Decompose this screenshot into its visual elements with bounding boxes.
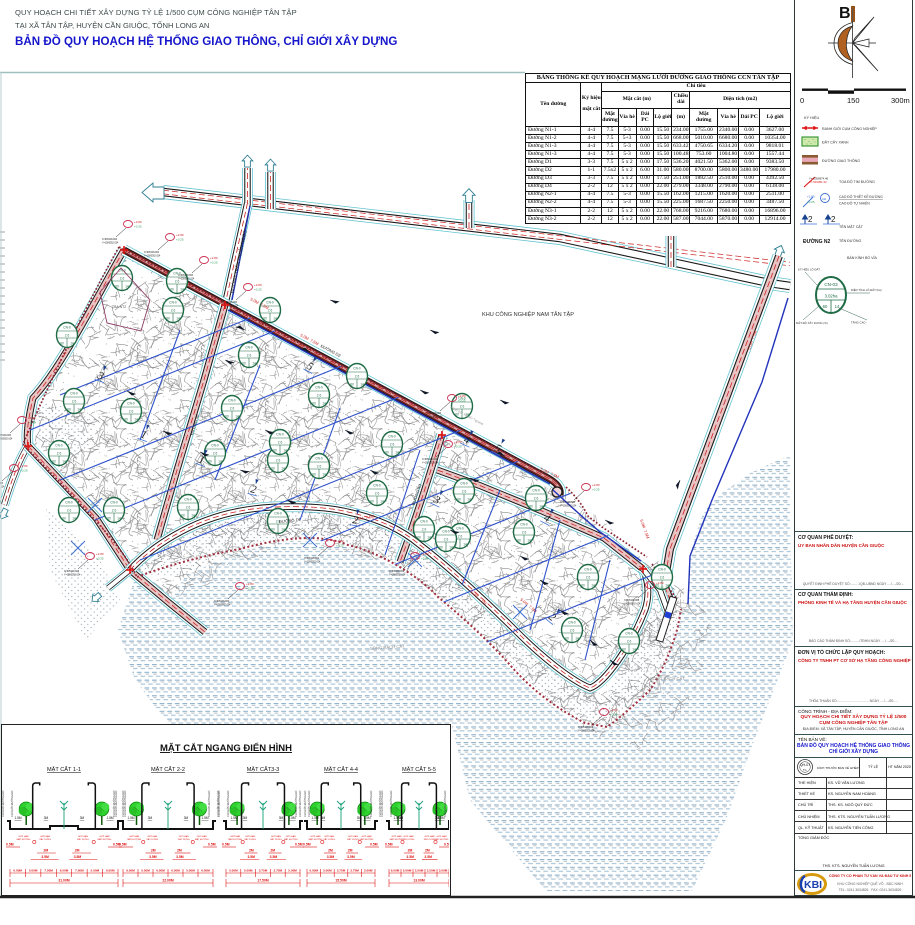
svg-text:CN-0: CN-0 — [245, 346, 253, 350]
svg-text:60: 60 — [622, 648, 626, 652]
svg-text:2.6: 2.6 — [458, 535, 463, 539]
svg-text:3.5M: 3.5M — [270, 855, 278, 859]
svg-text:2.6: 2.6 — [462, 490, 467, 494]
svg-text:+0.25: +0.25 — [458, 398, 466, 402]
svg-text:+2.80: +2.80 — [336, 539, 344, 543]
svg-text:13.00M: 13.00M — [413, 879, 424, 883]
svg-text:+0.25: +0.25 — [28, 420, 36, 424]
svg-text:14: 14 — [191, 514, 195, 518]
svg-text:ĐƯỜNG GIAO THÔNG: ĐƯỜNG GIAO THÔNG — [822, 158, 860, 163]
svg-text:GIỚI HẠNXÂY DỰNG: GIỚI HẠNXÂY DỰNG — [323, 835, 335, 841]
svg-text:QH-07: QH-07 — [800, 763, 811, 767]
svg-text:TÊN MẶT CẬT: TÊN MẶT CẬT — [839, 224, 864, 229]
svg-text:CN-0: CN-0 — [211, 444, 219, 448]
svg-text:+2.80: +2.80 — [210, 256, 218, 260]
svg-text:2.6: 2.6 — [67, 509, 72, 513]
svg-text:CN-0: CN-0 — [353, 367, 361, 371]
svg-text:2.6: 2.6 — [57, 452, 62, 456]
svg-text:+2.80: +2.80 — [807, 195, 815, 199]
svg-text:MẬT ĐỘ XÂY DỰNG (%): MẬT ĐỘ XÂY DỰNG (%) — [796, 320, 828, 325]
svg-text:2.6: 2.6 — [444, 538, 449, 542]
svg-text:CN-0: CN-0 — [65, 501, 73, 505]
svg-text:14: 14 — [70, 342, 74, 346]
svg-text:3M: 3M — [44, 816, 49, 820]
svg-text:5.00M: 5.00M — [323, 869, 332, 873]
svg-text:+0.25: +0.25 — [610, 712, 618, 716]
svg-text:MẶT CẮT NGANG ĐIỂN HÌNH: MẶT CẮT NGANG ĐIỂN HÌNH — [160, 742, 292, 754]
svg-text:14: 14 — [281, 528, 285, 532]
svg-text:X=605109.900: X=605109.900 — [422, 459, 438, 461]
svg-text:1.5M: 1.5M — [288, 816, 295, 820]
svg-text:GIỚI HẠNMẬT ĐƯỜNG: GIỚI HẠNMẬT ĐƯỜNG — [17, 835, 31, 841]
svg-text:2.6: 2.6 — [72, 400, 77, 404]
svg-text:3.5M: 3.5M — [406, 855, 414, 859]
svg-text:CHỈ GIỚI ĐƯỜNG ĐỎ: CHỈ GIỚI ĐƯỜNG ĐỎ — [9, 791, 14, 817]
svg-text:2.6: 2.6 — [627, 640, 632, 644]
svg-text:3.5M: 3.5M — [41, 855, 49, 859]
svg-text:3M: 3M — [399, 816, 404, 820]
svg-text:60: 60 — [312, 473, 316, 477]
svg-text:60: 60 — [225, 415, 229, 419]
svg-text:0.5M: 0.5M — [208, 843, 216, 847]
svg-text:+0.25: +0.25 — [254, 287, 262, 291]
svg-text:CN-0: CN-0 — [568, 621, 576, 625]
svg-text:CN-0: CN-0 — [373, 484, 381, 488]
svg-text:60: 60 — [417, 536, 421, 540]
svg-text:2M: 2M — [348, 849, 353, 853]
svg-text:+0.25: +0.25 — [134, 224, 142, 228]
svg-text:KÝ HIỆU LÔ ĐẤT: KÝ HIỆU LÔ ĐẤT — [798, 267, 820, 272]
svg-text:CN-0: CN-0 — [127, 402, 135, 406]
svg-text:60: 60 — [166, 317, 170, 321]
svg-text:2.6: 2.6 — [375, 492, 380, 496]
svg-text:X=605109.900: X=605109.900 — [0, 435, 12, 437]
svg-text:CN-0: CN-0 — [70, 392, 78, 396]
svg-text:14: 14 — [273, 317, 277, 321]
svg-text:60: 60 — [124, 418, 128, 422]
svg-text:60: 60 — [312, 402, 316, 406]
svg-text:60: 60 — [581, 584, 585, 588]
svg-text:6.00M: 6.00M — [126, 869, 135, 873]
svg-text:2.50M: 2.50M — [427, 869, 436, 873]
svg-text:0.5M: 0.5M — [6, 843, 14, 847]
svg-text:0.5M: 0.5M — [119, 843, 127, 847]
svg-text:CHỈ GIỚI ĐƯỜNG ĐỎ: CHỈ GIỚI ĐƯỜNG ĐỎ — [225, 791, 230, 817]
svg-text:3.75M: 3.75M — [350, 869, 359, 873]
svg-text:+2.80: +2.80 — [254, 283, 262, 287]
svg-text:+2.80: +2.80 — [28, 416, 36, 420]
svg-text:3.00M: 3.00M — [439, 869, 448, 873]
svg-text:5.00M: 5.00M — [229, 869, 238, 873]
svg-text:T.L: T.L — [803, 768, 807, 772]
svg-text:SÔNG RẠCH CÁT: SÔNG RẠCH CÁT — [650, 676, 685, 681]
svg-text:RANH GIỚI CỤM CÔNG NGHIỆP: RANH GIỚI CỤM CÔNG NGHIỆP — [822, 126, 877, 131]
svg-text:2.6: 2.6 — [660, 576, 665, 580]
svg-text:X=605109.900: X=605109.900 — [624, 600, 640, 602]
svg-text:+0.25: +0.25 — [592, 487, 600, 491]
svg-text:6.00M: 6.00M — [201, 869, 210, 873]
svg-text:X=605109.900: X=605109.900 — [102, 239, 118, 241]
svg-text:14: 14 — [77, 408, 81, 412]
svg-text:60: 60 — [263, 317, 267, 321]
svg-text:14: 14 — [591, 584, 595, 588]
svg-text:CN-0: CN-0 — [55, 444, 63, 448]
svg-text:TỌA ĐỘ TIM ĐƯỜNG: TỌA ĐỘ TIM ĐƯỜNG — [839, 179, 875, 184]
svg-text:GIỚI HẠNXÂY DỰNG: GIỚI HẠNXÂY DỰNG — [403, 835, 415, 841]
svg-text:1.5M: 1.5M — [201, 816, 208, 820]
svg-text:60: 60 — [62, 517, 66, 521]
svg-text:2M: 2M — [270, 849, 275, 853]
svg-text:2.6: 2.6 — [213, 452, 218, 456]
svg-text:KHU CÔNG NGHIỆP NAM TÂN TẬP: KHU CÔNG NGHIỆP NAM TÂN TẬP — [482, 310, 574, 318]
svg-text:60: 60 — [273, 449, 277, 453]
svg-text:3M: 3M — [243, 816, 248, 820]
svg-text:CN-0: CN-0 — [520, 523, 528, 527]
svg-text:GIỚI HẠNXÂY DỰNG: GIỚI HẠNXÂY DỰNG — [424, 835, 436, 841]
svg-text:Y=1585052.624: Y=1585052.624 — [578, 731, 595, 733]
svg-text:CN-0: CN-0 — [658, 568, 666, 572]
svg-text:7.50M: 7.50M — [75, 869, 84, 873]
svg-text:CN-0: CN-0 — [420, 520, 428, 524]
svg-text:ĐẤT CÂY XANH: ĐẤT CÂY XANH — [822, 141, 849, 145]
svg-text:CN-0: CN-0 — [274, 512, 282, 516]
svg-text:+2.80: +2.80 — [176, 233, 184, 237]
svg-text:0.5M: 0.5M — [295, 843, 303, 847]
svg-text:CHỈ GIỚI ĐƯỜNG ĐỎ: CHỈ GIỚI ĐƯỜNG ĐỎ — [302, 791, 307, 817]
svg-text:GIỚI HẠNMẬT ĐƯỜNG: GIỚI HẠNMẬT ĐƯỜNG — [98, 835, 112, 841]
svg-text:GIỚI HẠNMẬT ĐƯỜNG: GIỚI HẠNMẬT ĐƯỜNG — [435, 835, 449, 841]
svg-text:GIỚI HẠNMẬT ĐƯỜNG: GIỚI HẠNMẬT ĐƯỜNG — [228, 835, 242, 841]
svg-text:Y=1585052.624: Y=1585052.624 — [422, 463, 439, 465]
svg-text:Y=1585052.624: Y=1585052.624 — [102, 243, 119, 245]
svg-text:14: 14 — [134, 418, 138, 422]
svg-text:CĐ: CĐ — [822, 197, 827, 201]
svg-text:2.6: 2.6 — [422, 528, 427, 532]
svg-text:TBA-NT2: TBA-NT2 — [112, 305, 126, 309]
svg-text:2.6: 2.6 — [230, 407, 235, 411]
svg-text:2.6: 2.6 — [65, 334, 70, 338]
svg-text:+2.80: +2.80 — [134, 220, 142, 224]
svg-text:CN-0: CN-0 — [63, 326, 71, 330]
svg-text:3.00M: 3.00M — [364, 869, 373, 873]
svg-text:6.00M: 6.00M — [13, 869, 22, 873]
svg-text:Y=1585052.624: Y=1585052.624 — [389, 575, 406, 577]
svg-text:CN-0: CN-0 — [228, 399, 236, 403]
svg-text:14: 14 — [539, 505, 543, 509]
svg-text:X=605109.900: X=605109.900 — [426, 413, 442, 415]
svg-text:2.6: 2.6 — [268, 309, 273, 313]
svg-text:CHỈ GIỚI ĐƯỜNG ĐỎ: CHỈ GIỚI ĐƯỜNG ĐỎ — [388, 791, 393, 817]
svg-text:14: 14 — [281, 467, 285, 471]
svg-text:60: 60 — [385, 451, 389, 455]
svg-text:X= 591051.32: X= 591051.32 — [809, 180, 827, 184]
svg-text:+0.25: +0.25 — [336, 543, 344, 547]
svg-text:2.50M: 2.50M — [415, 869, 424, 873]
svg-text:+2.80: +2.80 — [96, 552, 104, 556]
svg-text:GIỚI HẠNXÂY DỰNG: GIỚI HẠNXÂY DỰNG — [146, 835, 158, 841]
svg-text:GIỚI HẠNXÂY DỰNG: GIỚI HẠNXÂY DỰNG — [77, 835, 89, 841]
svg-text:3.02ha: 3.02ha — [825, 294, 838, 299]
svg-text:3.5M: 3.5M — [424, 855, 432, 859]
svg-text:GIỚI HẠNXÂY DỰNG: GIỚI HẠNXÂY DỰNG — [244, 835, 256, 841]
svg-text:2.6: 2.6 — [171, 309, 176, 313]
svg-text:60: 60 — [60, 342, 64, 346]
svg-text:14: 14 — [322, 473, 326, 477]
svg-text:5.00M: 5.00M — [186, 869, 195, 873]
svg-text:CN-0: CN-0 — [460, 482, 468, 486]
svg-text:CHỈ GIỚI ĐƯỜNG ĐỎ: CHỈ GIỚI ĐƯỜNG ĐỎ — [2, 791, 5, 817]
svg-text:GIỚI HẠNXÂY DỰNG: GIỚI HẠNXÂY DỰNG — [39, 835, 51, 841]
svg-text:MẶT CẮT3-3: MẶT CẮT3-3 — [247, 765, 280, 773]
svg-text:3M: 3M — [80, 816, 85, 820]
svg-text:14: 14 — [395, 451, 399, 455]
svg-text:31.00M: 31.00M — [58, 879, 69, 883]
svg-text:GIỚI HẠNMẬT ĐƯỜNG: GIỚI HẠNMẬT ĐƯỜNG — [195, 835, 209, 841]
svg-text:14: 14 — [62, 460, 66, 464]
svg-text:2.6: 2.6 — [390, 443, 395, 447]
svg-text:14: 14 — [463, 543, 467, 547]
svg-text:60: 60 — [107, 517, 111, 521]
svg-text:Y=1585052.624: Y=1585052.624 — [178, 279, 195, 281]
svg-text:60: 60 — [350, 383, 354, 387]
svg-text:2.6: 2.6 — [120, 277, 125, 281]
svg-text:2.6: 2.6 — [276, 459, 281, 463]
svg-text:6.00M: 6.00M — [391, 869, 400, 873]
svg-text:2.6: 2.6 — [586, 576, 591, 580]
svg-text:CN-0: CN-0 — [532, 489, 540, 493]
svg-text:+2.80: +2.80 — [592, 483, 600, 487]
svg-text:14: 14 — [322, 402, 326, 406]
svg-text:14: 14 — [665, 584, 669, 588]
svg-text:GIỚI HẠNXÂY DỰNG: GIỚI HẠNXÂY DỰNG — [347, 835, 359, 841]
svg-text:150: 150 — [847, 96, 860, 105]
svg-text:3.5M: 3.5M — [176, 855, 184, 859]
svg-text:DIỆN TÍCH LÔ ĐẤT (ha): DIỆN TÍCH LÔ ĐẤT (ha) — [851, 287, 882, 292]
svg-text:1.5M: 1.5M — [230, 816, 237, 820]
svg-text:60: 60 — [271, 528, 275, 532]
svg-text:2.6: 2.6 — [534, 497, 539, 501]
svg-text:14: 14 — [632, 648, 636, 652]
svg-text:300m: 300m — [891, 96, 910, 105]
svg-text:Y=1585052.624: Y=1585052.624 — [624, 604, 641, 606]
svg-text:14: 14 — [467, 498, 471, 502]
svg-text:+0.25: +0.25 — [176, 237, 184, 241]
svg-text:2.6: 2.6 — [355, 375, 360, 379]
svg-text:Y=1585052.624: Y=1585052.624 — [560, 506, 577, 508]
svg-text:60: 60 — [170, 288, 174, 292]
svg-text:+0.25: +0.25 — [246, 586, 254, 590]
svg-text:6.00M: 6.00M — [309, 869, 318, 873]
svg-text:1.5M: 1.5M — [311, 816, 318, 820]
svg-text:2: 2 — [808, 215, 813, 224]
svg-text:60: 60 — [181, 514, 185, 518]
svg-text:BÁN KÍNH BÓ VỈA: BÁN KÍNH BÓ VỈA — [847, 255, 878, 260]
svg-text:2.6: 2.6 — [522, 531, 527, 535]
svg-text:+2.80: +2.80 — [656, 581, 664, 585]
svg-text:60: 60 — [370, 500, 374, 504]
svg-text:5.00M: 5.00M — [403, 869, 412, 873]
svg-text:3.75M: 3.75M — [337, 869, 346, 873]
svg-text:TẦNG CAO: TẦNG CAO — [851, 321, 866, 325]
svg-text:2M: 2M — [328, 849, 333, 853]
svg-text:5.00M: 5.00M — [141, 869, 150, 873]
svg-text:X=605109.900: X=605109.900 — [64, 571, 80, 573]
svg-text:1.5M: 1.5M — [363, 816, 370, 820]
svg-text:1.5M: 1.5M — [437, 816, 444, 820]
svg-text:CAO ĐỘ THIẾT KẾ ĐƯỜNG: CAO ĐỘ THIẾT KẾ ĐƯỜNG — [839, 194, 883, 199]
svg-text:+0.25: +0.25 — [210, 260, 218, 264]
svg-text:CN-0: CN-0 — [110, 501, 118, 505]
svg-text:CN-0: CN-0 — [315, 386, 323, 390]
svg-text:Y=1585052.624: Y=1585052.624 — [0, 439, 13, 441]
svg-text:3M: 3M — [357, 816, 362, 820]
svg-text:2.6: 2.6 — [247, 354, 252, 358]
svg-text:2.6: 2.6 — [186, 506, 191, 510]
svg-text:60: 60 — [823, 304, 828, 309]
svg-text:5.00M: 5.00M — [91, 869, 100, 873]
svg-text:CN-03: CN-03 — [824, 282, 838, 287]
svg-text:X=605109.900: X=605109.900 — [304, 558, 320, 560]
svg-text:17.50M: 17.50M — [257, 879, 268, 883]
svg-text:+2.80: +2.80 — [421, 552, 429, 556]
svg-text:3.5M: 3.5M — [74, 855, 82, 859]
svg-text:14: 14 — [117, 517, 121, 521]
svg-text:CN-0: CN-0 — [315, 457, 323, 461]
svg-text:GIỚI HẠNXÂY DỰNG: GIỚI HẠNXÂY DỰNG — [178, 835, 190, 841]
svg-text:0.5M: 0.5M — [370, 843, 378, 847]
svg-text:KÝ HIỆU: KÝ HIỆU — [804, 115, 819, 120]
svg-text:TÊN ĐƯỜNG: TÊN ĐƯỜNG — [839, 238, 862, 243]
svg-text:14: 14 — [176, 317, 180, 321]
svg-text:5.00M: 5.00M — [288, 869, 297, 873]
svg-text:22.00M: 22.00M — [162, 879, 173, 883]
svg-text:X=605109.900: X=605109.900 — [389, 571, 405, 573]
svg-text:2M: 2M — [425, 849, 430, 853]
svg-text:KBI: KBI — [804, 879, 822, 891]
svg-text:3.5M: 3.5M — [347, 855, 355, 859]
svg-text:1.5M: 1.5M — [106, 816, 113, 820]
svg-text:2.6: 2.6 — [317, 465, 322, 469]
svg-text:0.5M: 0.5M — [222, 843, 230, 847]
svg-text:60: 60 — [439, 546, 443, 550]
svg-text:2M: 2M — [151, 849, 156, 853]
svg-text:6.00M: 6.00M — [171, 869, 180, 873]
svg-text:6.00M: 6.00M — [60, 869, 69, 873]
svg-text:Y=1585052.624: Y=1585052.624 — [144, 256, 161, 258]
svg-text:2.6: 2.6 — [317, 394, 322, 398]
svg-text:2.6: 2.6 — [278, 441, 283, 445]
svg-text:CN-0: CN-0 — [184, 498, 192, 502]
svg-text:Y=1585052.624: Y=1585052.624 — [214, 605, 231, 607]
svg-text:+2.80: +2.80 — [20, 464, 28, 468]
svg-text:3.5M: 3.5M — [149, 855, 157, 859]
svg-text:MẶT CẮT 4-4: MẶT CẮT 4-4 — [324, 765, 358, 773]
svg-text:CHỈ GIỚI ĐƯỜNG ĐỎ: CHỈ GIỚI ĐƯỜNG ĐỎ — [206, 791, 211, 817]
svg-text:2M: 2M — [408, 849, 413, 853]
svg-text:GIỚI HẠNMẬT ĐƯỜNG: GIỚI HẠNMẬT ĐƯỜNG — [127, 835, 141, 841]
svg-text:14: 14 — [527, 539, 531, 543]
svg-text:14: 14 — [380, 500, 384, 504]
svg-text:CAO ĐỘ TỰ NHIÊN: CAO ĐỘ TỰ NHIÊN — [839, 201, 870, 206]
svg-text:5.0M 7.5M: 5.0M 7.5M — [639, 519, 651, 540]
svg-text:CN-0: CN-0 — [276, 433, 284, 437]
svg-text:+2.80: +2.80 — [458, 394, 466, 398]
svg-text:3.75M: 3.75M — [273, 869, 282, 873]
svg-text:CN-0: CN-0 — [625, 632, 633, 636]
svg-text:0.5M: 0.5M — [385, 843, 393, 847]
svg-text:14: 14 — [283, 449, 287, 453]
svg-text:MẶT CẮT 5-5: MẶT CẮT 5-5 — [402, 765, 436, 773]
svg-text:14: 14 — [575, 637, 579, 641]
svg-text:+2.80: +2.80 — [610, 708, 618, 712]
svg-text:14: 14 — [449, 546, 453, 550]
svg-text:ĐƯỜNG N2: ĐƯỜNG N2 — [803, 237, 831, 245]
svg-text:2: 2 — [831, 215, 836, 224]
svg-text:60: 60 — [517, 539, 521, 543]
svg-text:60: 60 — [52, 460, 56, 464]
svg-text:+0.25: +0.25 — [96, 556, 104, 560]
svg-text:14: 14 — [72, 517, 76, 521]
svg-text:2M: 2M — [249, 849, 254, 853]
svg-text:X=605109.900: X=605109.900 — [214, 601, 230, 603]
svg-text:60: 60 — [67, 408, 71, 412]
svg-text:6.00M: 6.00M — [156, 869, 165, 873]
svg-text:14: 14 — [427, 536, 431, 540]
svg-text:MẶT CẮT 1-1: MẶT CẮT 1-1 — [47, 765, 81, 773]
svg-text:2M: 2M — [177, 849, 182, 853]
svg-text:2M: 2M — [43, 849, 48, 853]
svg-text:B: B — [839, 5, 851, 22]
svg-text:0: 0 — [800, 96, 804, 105]
svg-text:60: 60 — [242, 362, 246, 366]
svg-text:14: 14 — [252, 362, 256, 366]
svg-text:60: 60 — [529, 505, 533, 509]
svg-text:1.5M: 1.5M — [127, 816, 134, 820]
svg-text:2.6: 2.6 — [570, 629, 575, 633]
svg-text:14: 14 — [125, 285, 129, 289]
svg-text:15.50M: 15.50M — [335, 879, 346, 883]
svg-text:Y=1585052.624: Y=1585052.624 — [426, 417, 443, 419]
svg-text:14: 14 — [218, 460, 222, 464]
svg-text:2.6: 2.6 — [129, 410, 134, 414]
svg-text:Y=1585052.624: Y=1585052.624 — [64, 575, 81, 577]
svg-text:3.5M: 3.5M — [247, 855, 255, 859]
svg-text:60: 60 — [271, 467, 275, 471]
svg-text:GIỚI HẠNMẬT ĐƯỜNG: GIỚI HẠNMẬT ĐƯỜNG — [390, 835, 404, 841]
svg-text:3.5M: 3.5M — [327, 855, 335, 859]
svg-text:+0.25: +0.25 — [807, 200, 815, 204]
svg-text:3M: 3M — [184, 816, 189, 820]
svg-text:X=605109.900: X=605109.900 — [144, 252, 160, 254]
svg-text:5.00M: 5.00M — [29, 869, 38, 873]
svg-text:GIỚI HẠNMẬT ĐƯỜNG: GIỚI HẠNMẬT ĐƯỜNG — [360, 835, 374, 841]
svg-text:14: 14 — [360, 383, 364, 387]
svg-text:3M: 3M — [321, 816, 326, 820]
svg-text:+2.80: +2.80 — [246, 582, 254, 586]
svg-text:0.5M: 0.5M — [303, 843, 311, 847]
svg-text:CN-0: CN-0 — [442, 530, 450, 534]
svg-text:2M: 2M — [75, 849, 80, 853]
svg-text:+0.25: +0.25 — [421, 556, 429, 560]
svg-text:5.00M: 5.00M — [244, 869, 253, 873]
svg-text:0.5M: 0.5M — [444, 843, 449, 847]
svg-text:3M: 3M — [148, 816, 153, 820]
svg-text:MẶT CẮT 2-2: MẶT CẮT 2-2 — [151, 765, 185, 773]
svg-text:14: 14 — [235, 415, 239, 419]
svg-text:6.00M: 6.00M — [106, 869, 115, 873]
svg-text:2.6: 2.6 — [460, 405, 465, 409]
svg-text:Y=1585052.624: Y=1585052.624 — [304, 562, 321, 564]
